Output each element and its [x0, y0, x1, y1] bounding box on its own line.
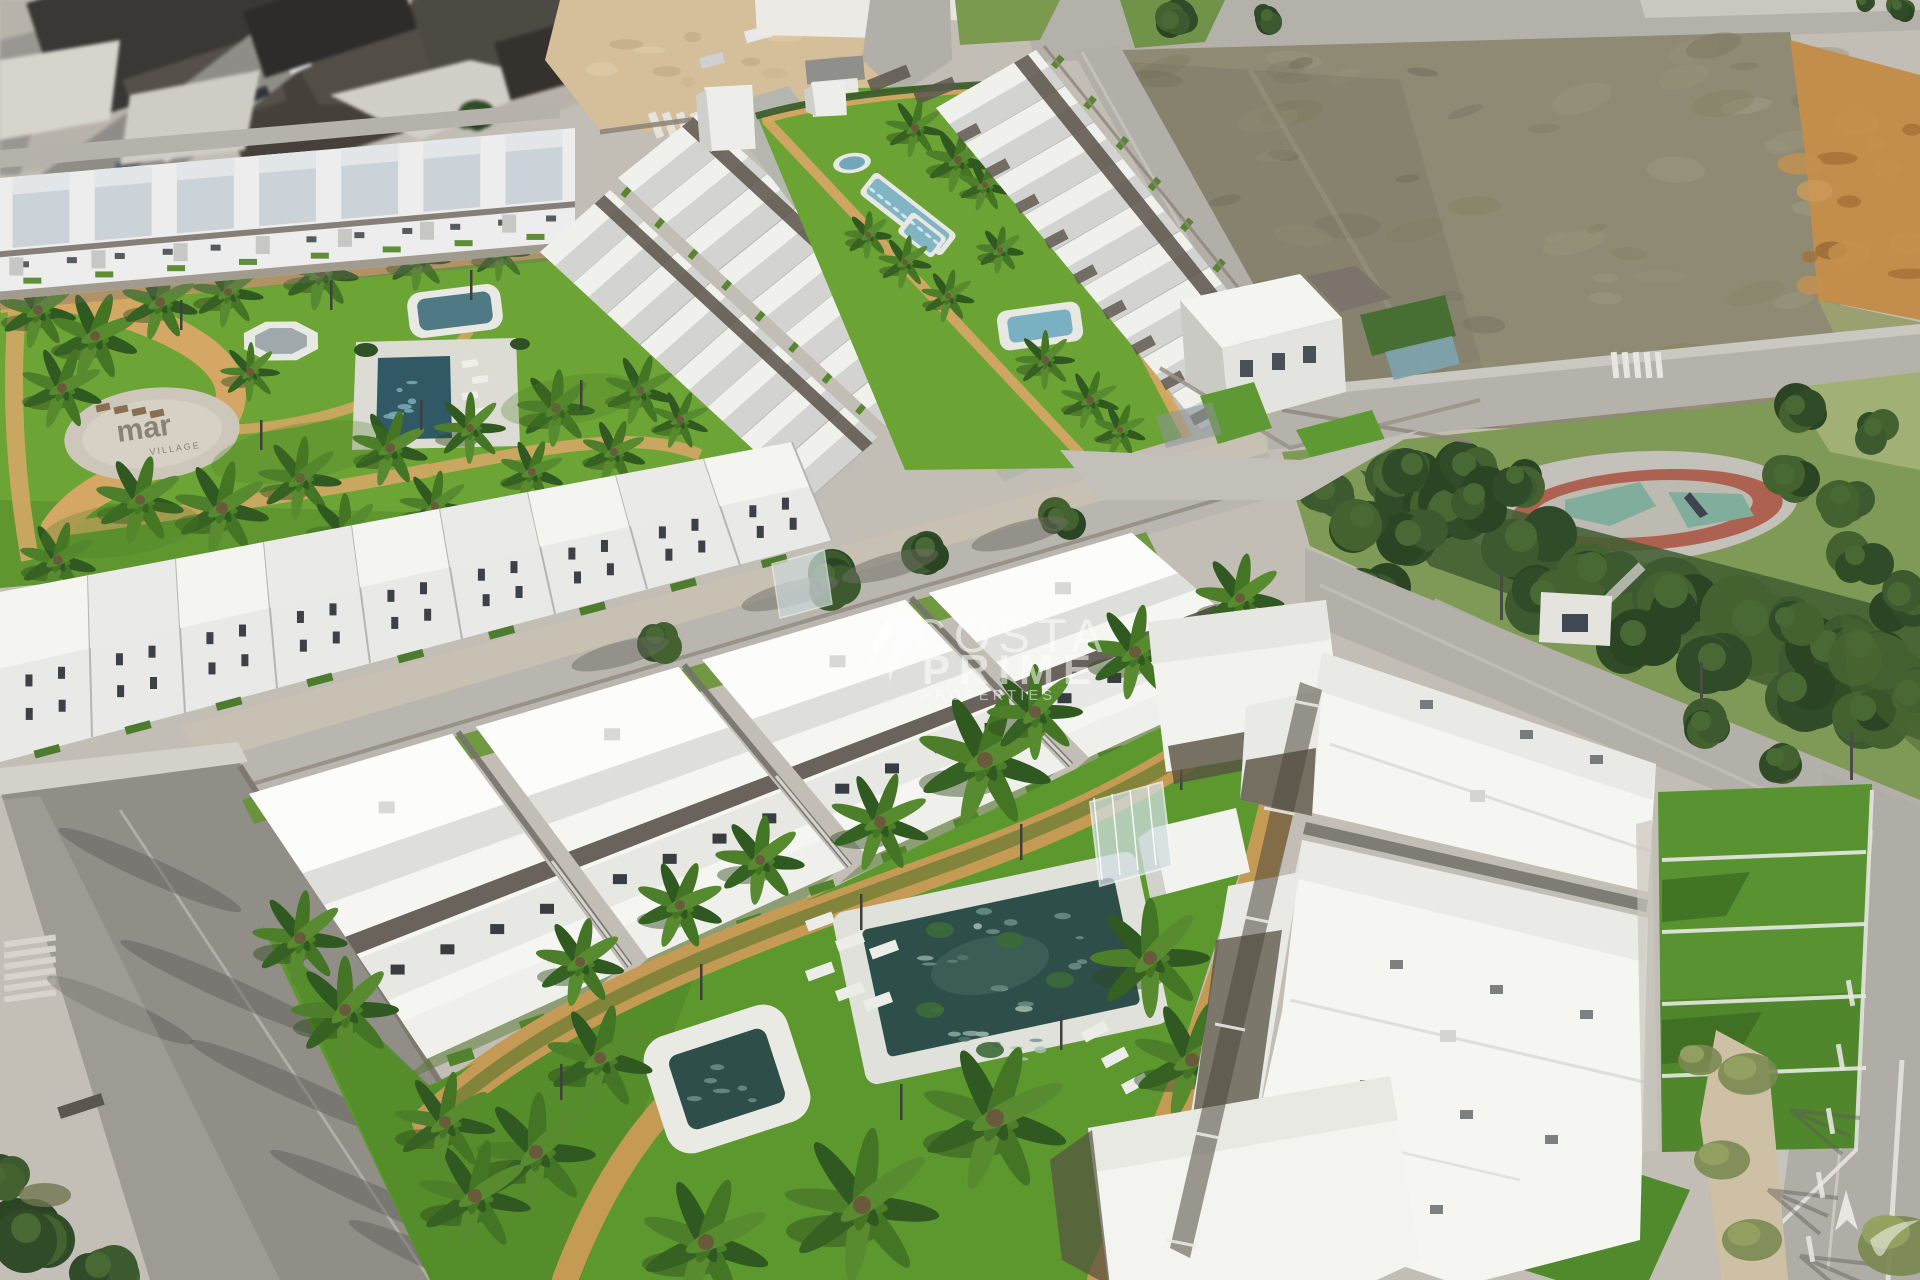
svg-text:PRIME: PRIME	[922, 646, 1100, 693]
svg-text:PROPERTIES: PROPERTIES	[921, 688, 1056, 704]
